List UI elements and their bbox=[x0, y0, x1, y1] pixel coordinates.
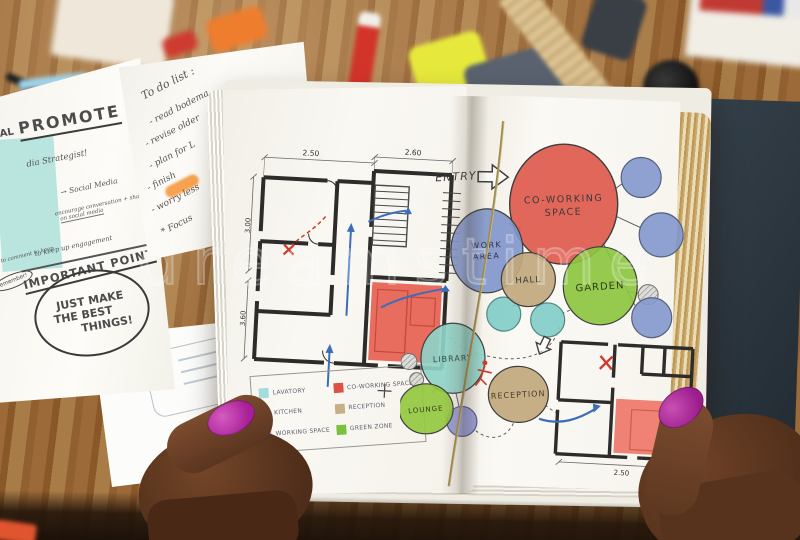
dim-top-left: 2.50 bbox=[302, 148, 319, 158]
small-plan-x-mark bbox=[600, 356, 613, 370]
blue-circle bbox=[631, 297, 672, 338]
orange-highlighter bbox=[204, 4, 270, 54]
todo-item: * Focus bbox=[160, 213, 195, 237]
legend-label: RECEPTION bbox=[348, 402, 385, 412]
notebook-arrow-note: → Social Media bbox=[60, 176, 119, 197]
hall-label: HALL bbox=[515, 275, 541, 286]
dim-side-top: 3.00 bbox=[244, 217, 253, 233]
legend-label: WORKING SPACE bbox=[275, 427, 330, 438]
legend-swatch bbox=[336, 424, 347, 435]
dim-side-bottom: 3.60 bbox=[239, 310, 248, 326]
blue-circle bbox=[621, 157, 662, 198]
legend-label: KITCHEN bbox=[274, 408, 303, 417]
blue-circle bbox=[639, 212, 684, 257]
photo-scene: IAL PROMOTE dia Strategist! → Social Med… bbox=[0, 0, 800, 540]
legend-label: LAVATORY bbox=[272, 387, 305, 396]
small-plan-blue-arrow bbox=[539, 406, 596, 424]
notebook-heading: PROMOTE bbox=[17, 101, 122, 142]
small-plan-arrowhead bbox=[593, 404, 601, 413]
legend-swatch bbox=[334, 404, 345, 415]
coworking-label-2: SPACE bbox=[544, 207, 582, 219]
legend-swatch bbox=[333, 383, 344, 394]
cream-box bbox=[50, 0, 174, 71]
gray-tool bbox=[579, 0, 648, 62]
teal-circle bbox=[530, 303, 565, 338]
small-plan-dim: 2.50 bbox=[613, 469, 629, 478]
red-dashed-route bbox=[284, 214, 326, 256]
legend-label: GREEN ZONE bbox=[350, 422, 393, 432]
legend-item: LAVATORY bbox=[258, 380, 328, 403]
hatched-circle bbox=[401, 353, 417, 369]
